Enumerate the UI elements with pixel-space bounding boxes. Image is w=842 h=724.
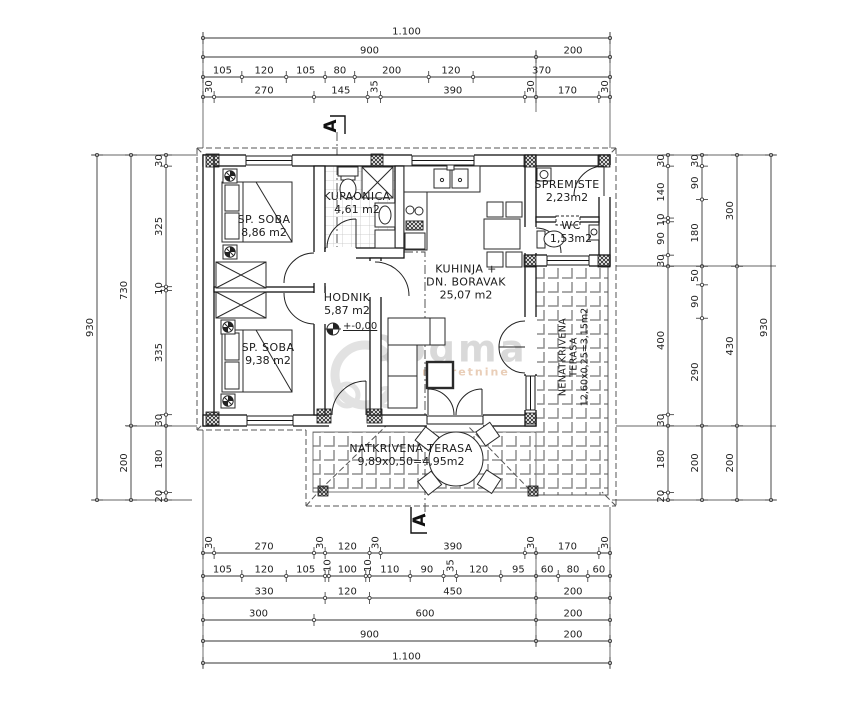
room-name: SP. SOBA	[242, 341, 295, 354]
dimension-label: 450	[443, 587, 462, 598]
dimension-label: 10	[363, 559, 374, 572]
dimension-label: 200	[119, 453, 130, 472]
dimension-label: 10	[154, 282, 165, 295]
dimension-label: 30	[204, 80, 215, 93]
room-area: 2,23m2	[534, 191, 599, 204]
dimension-label: 200	[563, 587, 582, 598]
dimension-label: 120	[441, 66, 460, 77]
room-name: DN. BORAVAK	[426, 276, 506, 289]
dimension-label: 430	[725, 337, 736, 356]
dimension-label: 140	[656, 183, 667, 202]
dimension-label: 30	[656, 254, 667, 267]
dimension-label: 200	[563, 630, 582, 641]
room-name: HODNIK	[324, 291, 371, 304]
room-name: NATKRIVENA TERASA	[349, 442, 472, 455]
dimension-label: 900	[360, 46, 379, 57]
dimension-label: 20	[656, 490, 667, 503]
dimension-label: 200	[690, 453, 701, 472]
dimension-label: 170	[558, 86, 577, 97]
dimension-label: 325	[154, 217, 165, 236]
room-label-bathroom: KUPAONICA 4,61 m2	[323, 190, 390, 216]
dimension-label: 30	[690, 154, 701, 167]
dimension-label: 30	[600, 536, 611, 549]
dimension-label: 120	[255, 565, 274, 576]
dimension-label: 120	[338, 587, 357, 598]
dimension-label: 80	[567, 565, 580, 576]
dimension-label: 390	[443, 86, 462, 97]
room-area: 25,07 m2	[426, 289, 506, 302]
dimension-label: 930	[85, 318, 96, 337]
dimension-label: 170	[558, 542, 577, 553]
dimension-label: 200	[725, 453, 736, 472]
room-name: NENATKRIVENA	[558, 287, 569, 427]
dimension-label: 600	[415, 609, 434, 620]
room-area: 9,89x0,50=4,95m2	[349, 455, 472, 468]
room-name: TERASA	[569, 287, 580, 427]
elevation-label: +-0,00	[343, 321, 377, 332]
dimension-label: 30	[526, 80, 537, 93]
dimension-label: 30	[204, 536, 215, 549]
dimension-label: 30	[656, 154, 667, 167]
dimension-label: 930	[759, 318, 770, 337]
dimension-label: 730	[119, 281, 130, 300]
dimension-label: 400	[656, 331, 667, 350]
dimension-label: 370	[532, 66, 551, 77]
dimension-label: 290	[690, 362, 701, 381]
room-label-storage: SPREMISTE 2,23m2	[534, 178, 599, 204]
room-name: SPREMISTE	[534, 178, 599, 191]
dimension-label: 30	[315, 536, 326, 549]
room-label-kitchen-living: KUHINJA + DN. BORAVAK 25,07 m2	[426, 263, 506, 302]
dimension-label: 200	[382, 66, 401, 77]
room-label-wc: WC 1,53m2	[550, 219, 592, 245]
section-marker-bottom: A	[410, 513, 430, 526]
dimension-label: 30	[526, 536, 537, 549]
dimension-label: 60	[593, 565, 606, 576]
dimension-label: 300	[725, 201, 736, 220]
dimension-label: 30	[656, 414, 667, 427]
dimension-label: 30	[600, 80, 611, 93]
dimension-label: 270	[255, 86, 274, 97]
dimension-label: 330	[255, 587, 274, 598]
dimension-label: 180	[690, 223, 701, 242]
dimension-label: 90	[420, 565, 433, 576]
dimension-label: 200	[563, 46, 582, 57]
dimension-label: 30	[154, 414, 165, 427]
dimension-label: 1.100	[392, 27, 421, 38]
dimension-label: 30	[154, 154, 165, 167]
dimension-label: 120	[255, 66, 274, 77]
dimension-label: 30	[371, 536, 382, 549]
room-area: 8,86 m2	[238, 226, 291, 239]
dimension-label: 105	[296, 66, 315, 77]
room-name: SP. SOBA	[238, 213, 291, 226]
dimension-label: 390	[443, 542, 462, 553]
section-marker-top: A	[321, 119, 341, 132]
room-area: 4,61 m2	[323, 203, 390, 216]
room-label-uncovered-terrace: NENATKRIVENA TERASA 12,60x0,25=3,15m2	[558, 287, 591, 427]
dimension-label: 20	[154, 490, 165, 503]
dimension-label: 90	[690, 295, 701, 308]
dimension-label: 105	[213, 66, 232, 77]
dimension-chains: 1.10090020010512010580200120370302701453…	[0, 0, 842, 724]
room-label-hallway: HODNIK 5,87 m2	[324, 291, 371, 317]
dimension-label: 145	[331, 86, 350, 97]
dimension-label: 300	[249, 609, 268, 620]
room-name: WC	[550, 219, 592, 232]
dimension-label: 120	[338, 542, 357, 553]
dimension-label: 200	[563, 609, 582, 620]
dimension-label: 50	[690, 269, 701, 282]
dimension-label: 60	[541, 565, 554, 576]
dimension-label: 105	[296, 565, 315, 576]
room-name: KUPAONICA	[323, 190, 390, 203]
dimension-label: 35	[445, 559, 456, 572]
room-label-bedroom1: SP. SOBA 8,86 m2	[238, 213, 291, 239]
dimension-label: 105	[213, 565, 232, 576]
room-area: 12,60x0,25=3,15m2	[580, 287, 591, 427]
dimension-label: 95	[512, 565, 525, 576]
dimension-label: 90	[690, 176, 701, 189]
dimension-label: 335	[154, 343, 165, 362]
dimension-label: 35	[370, 80, 381, 93]
dimension-label: 1.100	[392, 652, 421, 663]
dimension-label: 80	[334, 66, 347, 77]
dimension-label: 270	[255, 542, 274, 553]
dimension-label: 90	[656, 232, 667, 245]
room-name: KUHINJA +	[426, 263, 506, 276]
room-label-bedroom2: SP. SOBA 9,38 m2	[242, 341, 295, 367]
dimension-label: 10	[656, 214, 667, 227]
room-label-covered-terrace: NATKRIVENA TERASA 9,89x0,50=4,95m2	[349, 442, 472, 468]
room-area: 5,87 m2	[324, 304, 371, 317]
dimension-label: 100	[338, 565, 357, 576]
room-area: 1,53m2	[550, 232, 592, 245]
room-area: 9,38 m2	[242, 354, 295, 367]
dimension-label: 120	[469, 565, 488, 576]
dimension-label: 180	[656, 450, 667, 469]
dimension-label: 10	[322, 559, 333, 572]
floor-plan-page: Dogma nekretnine	[0, 0, 842, 724]
dimension-label: 900	[360, 630, 379, 641]
dimension-label: 180	[154, 450, 165, 469]
dimension-label: 110	[380, 565, 399, 576]
